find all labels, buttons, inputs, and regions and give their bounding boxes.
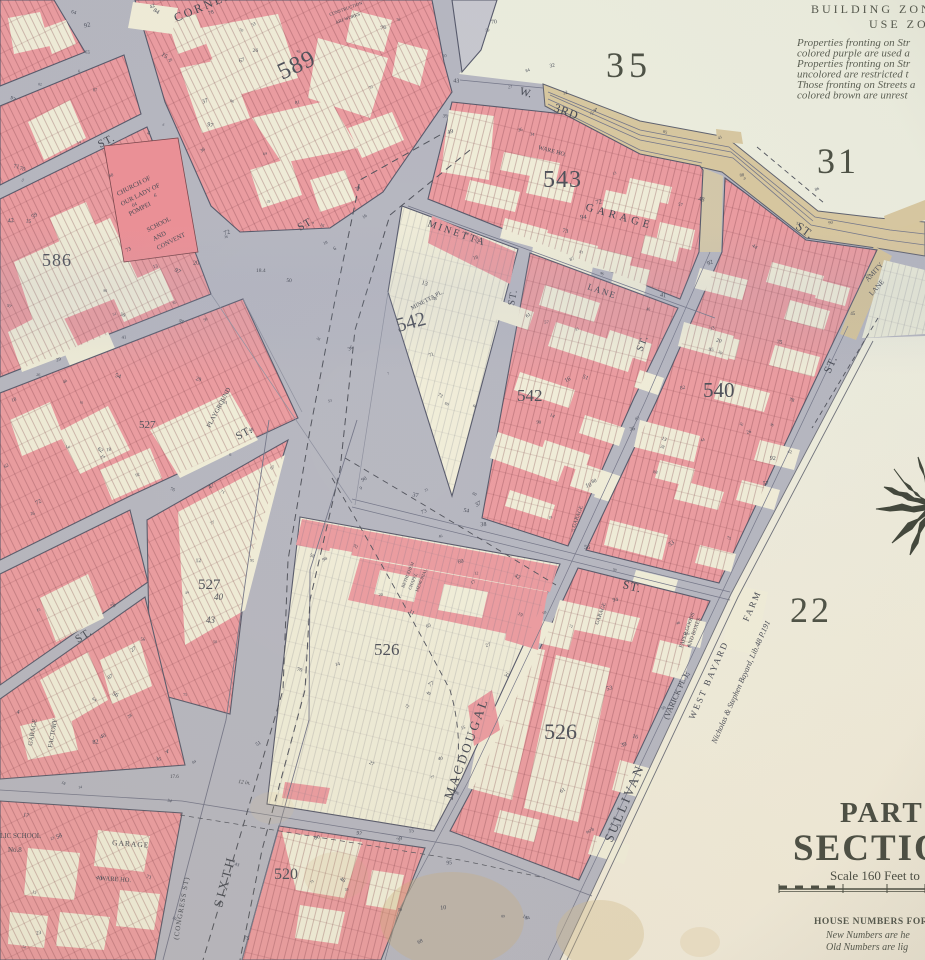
svg-text:56: 56 [584, 544, 591, 551]
svg-text:70: 70 [491, 19, 497, 25]
svg-text:48: 48 [698, 196, 705, 204]
svg-text:89: 89 [501, 914, 505, 918]
svg-text:45: 45 [850, 312, 855, 317]
svg-text:39: 39 [443, 114, 448, 119]
svg-text:57: 57 [763, 481, 769, 488]
svg-text:16: 16 [684, 632, 690, 637]
svg-text:33: 33 [345, 887, 349, 891]
svg-text:15: 15 [409, 828, 415, 834]
svg-text:59: 59 [485, 27, 490, 32]
svg-text:50: 50 [286, 278, 292, 284]
svg-text:36: 36 [155, 756, 161, 763]
svg-text:50: 50 [213, 639, 217, 644]
svg-text:58: 58 [432, 296, 436, 301]
svg-text:82: 82 [38, 82, 42, 86]
svg-text:42: 42 [787, 449, 792, 454]
svg-text:75: 75 [777, 339, 783, 345]
svg-text:82: 82 [92, 738, 99, 746]
svg-text:12: 12 [474, 570, 478, 575]
svg-text:86: 86 [103, 289, 107, 294]
svg-text:95: 95 [446, 860, 452, 866]
svg-text:12: 12 [196, 558, 202, 564]
svg-text:40: 40 [438, 757, 444, 762]
svg-text:10: 10 [440, 905, 447, 912]
svg-text:72: 72 [595, 198, 602, 206]
svg-text:88: 88 [653, 469, 658, 475]
svg-text:92: 92 [769, 456, 775, 462]
svg-text:26: 26 [252, 48, 258, 54]
svg-text:94: 94 [580, 214, 587, 221]
svg-text:6: 6 [229, 453, 231, 457]
svg-text:78: 78 [396, 18, 400, 22]
svg-text:20: 20 [378, 592, 383, 597]
svg-text:75: 75 [183, 693, 187, 697]
svg-text:20: 20 [193, 259, 200, 266]
svg-text:71: 71 [13, 164, 20, 171]
svg-text:38: 38 [480, 522, 486, 528]
svg-text:81: 81 [80, 401, 84, 405]
svg-text:73: 73 [562, 228, 569, 235]
svg-text:14: 14 [65, 444, 70, 449]
svg-text:43: 43 [453, 78, 460, 85]
svg-text:14: 14 [78, 785, 82, 789]
svg-text:46: 46 [647, 307, 651, 311]
svg-text:61: 61 [223, 399, 228, 405]
svg-text:18: 18 [548, 515, 552, 519]
svg-text:56: 56 [398, 907, 403, 912]
svg-text:95: 95 [708, 348, 714, 353]
svg-text:53: 53 [606, 685, 613, 693]
svg-text:41: 41 [660, 293, 667, 300]
svg-text:37: 37 [412, 492, 419, 499]
svg-text:27: 27 [508, 84, 512, 89]
svg-text:42: 42 [7, 217, 14, 225]
